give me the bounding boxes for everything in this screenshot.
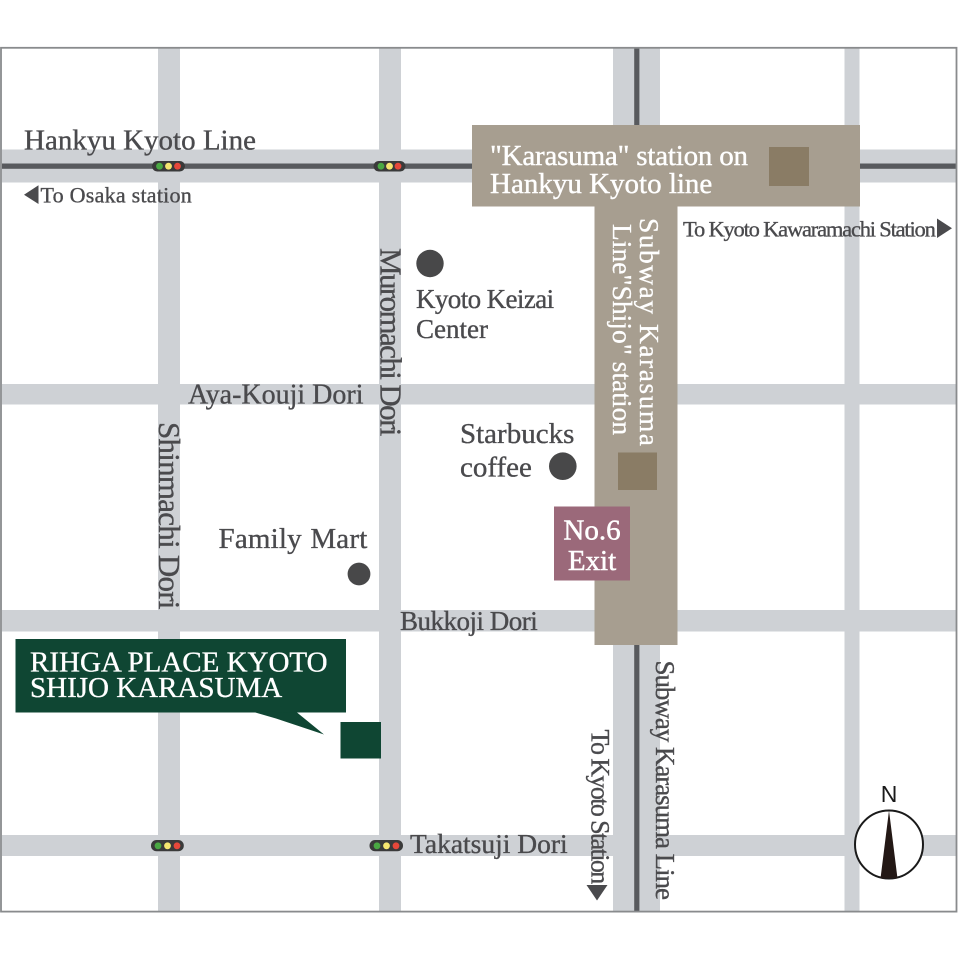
svg-text:Aya-Kouji Dori: Aya-Kouji Dori (188, 380, 364, 411)
svg-text:To Osaka station: To Osaka station (41, 182, 193, 207)
svg-text:To Kyoto Station: To Kyoto Station (585, 730, 614, 885)
svg-text:Exit: Exit (568, 545, 616, 577)
svg-text:N: N (881, 781, 898, 807)
svg-text:Hankyu Kyoto Line: Hankyu Kyoto Line (24, 125, 256, 157)
svg-text:Line"Shijo" station: Line"Shijo" station (607, 224, 638, 435)
svg-text:Bukkoji Dori: Bukkoji Dori (400, 606, 537, 636)
svg-text:Center: Center (416, 314, 488, 344)
svg-text:Shinmachi Dori: Shinmachi Dori (152, 422, 187, 610)
svg-text:Hankyu Kyoto line: Hankyu Kyoto line (490, 168, 712, 200)
svg-text:Family Mart: Family Mart (219, 523, 368, 555)
svg-text:To Kyoto Kawaramachi Station: To Kyoto Kawaramachi Station (683, 217, 936, 242)
svg-text:Subway Karasuma Line: Subway Karasuma Line (650, 661, 680, 900)
svg-text:Takatsuji Dori: Takatsuji Dori (410, 828, 568, 859)
svg-text:Starbucks: Starbucks (460, 418, 574, 450)
svg-text:Muromachi Dori: Muromachi Dori (374, 248, 409, 437)
svg-text:coffee: coffee (460, 452, 532, 484)
svg-text:No.6: No.6 (563, 515, 620, 547)
svg-text:SHIJO KARASUMA: SHIJO KARASUMA (30, 672, 282, 704)
svg-text:Kyoto Keizai: Kyoto Keizai (416, 284, 554, 314)
